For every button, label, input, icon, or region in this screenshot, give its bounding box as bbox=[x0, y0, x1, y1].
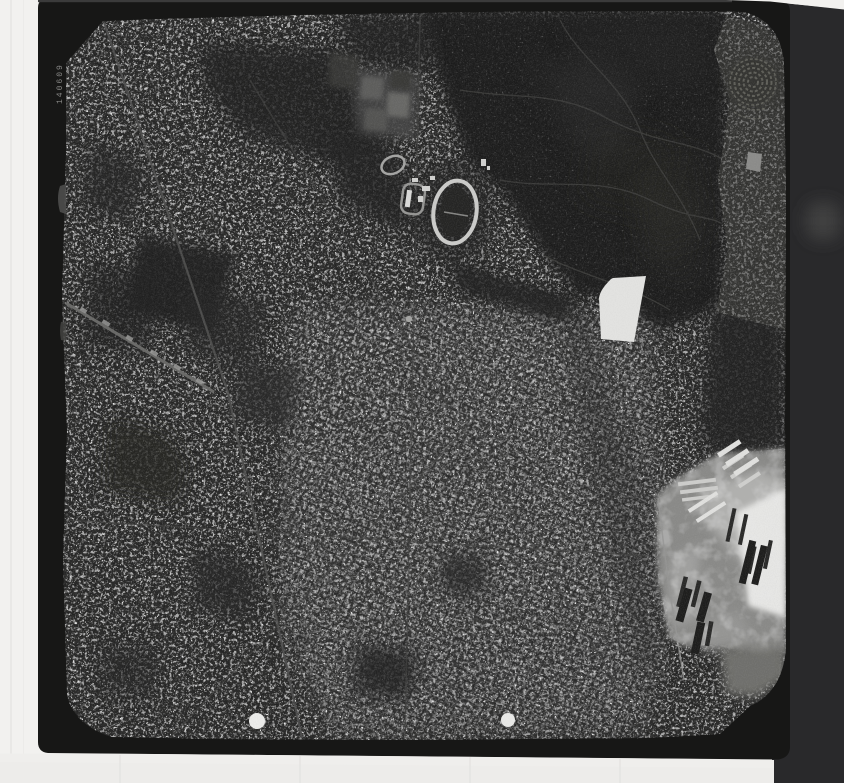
svg-text:140609: 140609 bbox=[56, 63, 65, 104]
